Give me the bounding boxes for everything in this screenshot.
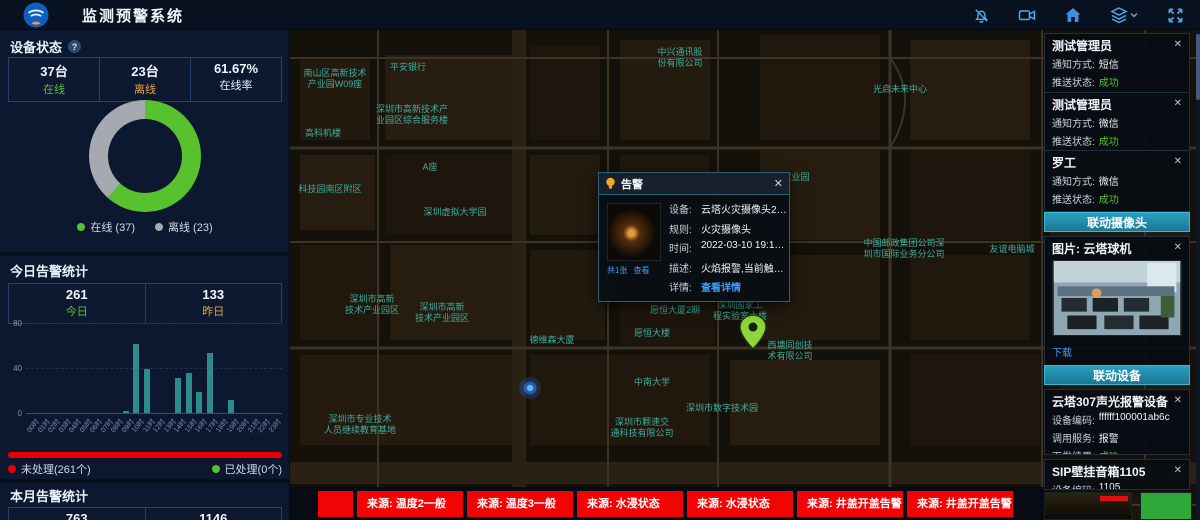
map-place-label: A座 [422,161,437,172]
card-row: 下发结果:成功 [1052,448,1182,455]
alarm-popup-header: 告警 ✕ [599,173,789,195]
top-header: 监测预警系统 [0,0,1200,30]
linked-camera-header: 联动摄像头 [1044,212,1190,232]
device-field-label: 设备编码: [1052,482,1095,490]
notification-title: 测试管理员 [1052,39,1170,53]
status-label: 推送状态: [1052,74,1095,89]
status-value: 成功 [1099,191,1119,206]
camera-snapshot-image[interactable] [1052,260,1182,336]
divider [0,252,290,256]
notification-card: 测试管理员✕通知方式:微信推送状态:成功 [1044,92,1190,154]
close-icon[interactable]: ✕ [1174,39,1182,50]
device-field-label: 调用服务: [1052,430,1095,445]
device-field-value: ffffff100001ab6c [1099,412,1170,427]
donut-legend: 在线 (37)离线 (23) [0,219,290,235]
map-place-label: 友谊电脑城 [989,243,1034,254]
y-tick-label: 0 [8,409,22,418]
dashboard: 南山区高新技术产业园W09座平安银行深圳市高新技术产业园区综合服务楼高科机楼A座… [0,0,1200,520]
today-alarm-stats: 261今日133昨日 [8,283,282,324]
card-row: 推送状态:成功 [1052,133,1182,148]
y-tick-label: 40 [8,364,22,373]
map-device-dot[interactable] [519,377,541,399]
device-status-title: 设备状态 ? [10,37,81,56]
stat-cell: 133昨日 [145,284,282,323]
card-row: 设备编码:ffffff100001ab6c [1052,412,1182,427]
bar [196,392,202,413]
header-actions [970,4,1186,26]
video-camera-icon[interactable] [1016,4,1038,26]
close-icon[interactable]: ✕ [1174,395,1182,406]
unhandled-label: 未处理(261个) [21,461,91,477]
gridline [26,323,282,324]
divider [0,479,290,483]
stat-value: 61.67% [191,61,281,76]
popup-field-row: 时间:2022-03-10 19:13:07 [669,240,787,255]
close-icon[interactable]: ✕ [1174,156,1182,167]
card-title-row: SIP壁挂音箱1105✕ [1052,465,1182,479]
notification-title: 罗工 [1052,156,1170,170]
alarm-popup: 告警 ✕ 共1张查看 设备:云塔火灾摄像头202规则:火灾摄像头时间:2022-… [598,172,790,302]
bar [175,378,181,413]
handled-dot [212,465,220,473]
stat-value: 261 [9,287,145,302]
device-status-donut-chart [89,100,201,212]
legend-dot [155,223,163,231]
card-row: 通知方式:短信 [1052,56,1182,71]
image-link[interactable]: 共1张 [607,265,627,276]
popup-field-label: 描述: [669,260,701,275]
bottom-video-thumbnails [1044,492,1192,520]
popup-field-row: 详情:查看详情 [669,279,787,294]
chevron-down-icon [1129,10,1139,20]
popup-field-row: 描述:火焰报警,当前触发值为... [669,260,787,275]
download-link[interactable]: 下载 [1052,344,1072,359]
alarm-ticker-item[interactable]: 来源: 温度2一般 [357,491,463,517]
gridline [26,368,282,369]
help-icon[interactable]: ? [68,40,81,53]
method-value: 微信 [1099,115,1119,130]
device-field-value: 报警 [1099,430,1119,445]
gridline [26,413,282,414]
thumbnail-alert-chip [1100,496,1128,501]
map-place-label: 深圳虚拟大学园 [423,206,486,217]
device-title: 云塔307声光报警设备 [1052,395,1170,409]
video-thumbnail-green[interactable] [1140,492,1192,520]
month-stat-value: 1146 [145,508,282,520]
status-label: 推送状态: [1052,191,1095,206]
method-label: 通知方式: [1052,115,1095,130]
donut-hole [108,119,182,193]
map-place-label: 中南大学 [634,376,670,387]
device-title: SIP壁挂音箱1105 [1052,465,1170,479]
status-value: 成功 [1099,74,1119,89]
alarm-image-links: 共1张查看 [607,265,663,276]
y-tick-label: 80 [8,319,22,328]
popup-field-value: 云塔火灾摄像头202 [701,201,787,216]
camera-card: 图片: 云塔球机 ✕ 下载 [1044,236,1190,367]
map-place-label: 光启未来中心 [873,83,927,94]
fullscreen-icon[interactable] [1164,4,1186,26]
notification-card: 罗工✕通知方式:微信推送状态:成功 [1044,150,1190,212]
popup-field-value: 火灾摄像头 [701,221,751,236]
stat-cell: 23台离线 [99,58,190,101]
map-place-label: 平安银行 [390,61,426,72]
card-row: 设备编码:1105 [1052,482,1182,490]
image-link[interactable]: 查看 [633,265,649,276]
map-place-label: 愿恒大厦2期 [650,304,700,315]
card-row: 通知方式:微信 [1052,115,1182,130]
stat-label: 离线 [100,81,190,97]
layers-icon[interactable] [1108,4,1140,26]
map-place-label: 深圳市数字技术园 [686,402,758,413]
method-label: 通知方式: [1052,173,1095,188]
video-thumbnail-camera[interactable] [1044,492,1132,520]
stat-label: 昨日 [146,303,282,319]
card-title-row: 测试管理员✕ [1052,98,1182,112]
bar [123,411,129,413]
method-value: 微信 [1099,173,1119,188]
status-label: 推送状态: [1052,133,1095,148]
close-icon[interactable]: ✕ [774,177,783,190]
notification-card: 测试管理员✕通知方式:短信推送状态:成功 [1044,33,1190,95]
alarm-ticker-item[interactable]: 来源: 水浸状态 [687,491,793,517]
bar [133,344,139,413]
camera-card-title: 图片: 云塔球机 [1052,242,1170,256]
stat-cell: 61.67%在线率 [190,58,281,101]
alarm-ticker-item[interactable]: 来源: 温度3一般 [467,491,573,517]
device-field-label: 设备编码: [1052,412,1095,427]
stat-value: 37台 [9,61,99,80]
app-logo-icon [22,1,50,34]
card-title-row: 云塔307声光报警设备✕ [1052,395,1182,409]
stat-cell: 37台在线 [9,58,99,101]
alarm-ticker-item[interactable]: 来源: 井盖开盖告警 [907,491,1013,517]
bar [228,400,234,414]
card-row: 调用服务:报警 [1052,430,1182,445]
alarm-mute-icon[interactable] [970,4,992,26]
right-scrollbar[interactable] [1196,30,1200,520]
home-icon[interactable] [1062,4,1084,26]
method-value: 短信 [1099,56,1119,71]
device-field-value: 成功 [1099,448,1119,455]
scrollbar-thumb[interactable] [1196,34,1200,100]
legend-dot [77,223,85,231]
method-label: 通知方式: [1052,56,1095,71]
map-place-label: 高科机楼 [305,127,341,138]
unhandled-progress-bar [8,452,282,458]
alarm-popup-title: 告警 [621,176,769,192]
legend-item: 在线 (37) [77,219,135,235]
device-status-stats: 37台在线23台离线61.67%在线率 [8,57,282,102]
hourly-alarm-bar-chart: 8040000时01时02时03时04时05时06时07时08时09时10时11… [8,320,282,445]
today-alarms-title: 今日告警统计 [10,261,88,280]
card-row: 推送状态:成功 [1052,191,1182,206]
popup-field-value: 火焰报警,当前触发值为... [701,260,787,275]
popup-field-label: 规则: [669,221,701,236]
bulb-icon [605,177,616,190]
stat-cell: 261今日 [9,284,145,323]
card-row: 推送状态:成功 [1052,74,1182,89]
month-alarm-stats: 7631146 [8,507,282,520]
map-place-label: 愿恒大楼 [634,327,670,338]
popup-field-value: 2022-03-10 19:13:07 [701,240,787,255]
view-details-link[interactable]: 查看详情 [701,279,741,294]
device-card: 云塔307声光报警设备✕设备编码:ffffff100001ab6c调用服务:报警… [1044,389,1190,455]
handled-label: 已处理(0个) [225,461,282,477]
card-title-row: 测试管理员✕ [1052,39,1182,53]
popup-field-label: 时间: [669,240,701,255]
legend-label: 离线 (23) [168,219,213,235]
bar [186,373,192,414]
bar [144,369,150,413]
card-title-row: 罗工✕ [1052,156,1182,170]
stat-label: 今日 [9,303,145,319]
unhandled-dot [8,465,16,473]
alarm-popup-fields: 设备:云塔火灾摄像头202规则:火灾摄像头时间:2022-03-10 19:13… [669,201,787,299]
page-title: 监测预警系统 [82,5,184,26]
stat-label: 在线率 [191,77,281,93]
device-card: SIP壁挂音箱1105✕设备编码:1105 [1044,459,1190,490]
alarm-ticker-item[interactable] [318,491,353,517]
legend-label: 在线 (37) [90,219,135,235]
close-icon[interactable]: ✕ [1174,98,1182,109]
month-stat-value: 763 [9,508,145,520]
right-sidebar: 测试管理员✕通知方式:短信推送状态:成功测试管理员✕通知方式:微信推送状态:成功… [1044,30,1194,520]
close-icon[interactable]: ✕ [1174,465,1182,476]
popup-field-label: 设备: [669,201,701,216]
alarm-ticker-item[interactable]: 来源: 水浸状态 [577,491,683,517]
popup-field-label: 详情: [669,279,701,294]
bar [207,353,213,413]
alarm-ticker-item[interactable]: 来源: 井盖开盖告警 [797,491,903,517]
device-field-value: 1105 [1099,482,1121,490]
stat-value: 133 [146,287,282,302]
map-place-label: 德维森大厦 [529,334,574,345]
card-row: 通知方式:微信 [1052,173,1182,188]
status-value: 成功 [1099,133,1119,148]
close-icon[interactable]: ✕ [1174,242,1182,253]
alarm-snapshot-image[interactable] [607,203,661,261]
month-alarms-title: 本月告警统计 [10,486,88,505]
linked-device-header: 联动设备 [1044,365,1190,385]
notification-title: 测试管理员 [1052,98,1170,112]
device-field-label: 下发结果: [1052,448,1095,455]
left-sidebar: 设备状态 ? 37台在线23台离线61.67%在线率 在线 (37)离线 (23… [0,30,290,520]
popup-field-row: 规则:火灾摄像头 [669,221,787,236]
stat-label: 在线 [9,81,99,97]
alarm-ticker: 来源: 温度2一般来源: 温度3一般来源: 水浸状态来源: 水浸状态来源: 井盖… [290,487,1044,520]
legend-item: 离线 (23) [155,219,213,235]
stat-value: 23台 [100,61,190,80]
process-legend: 未处理(261个) 已处理(0个) [8,461,282,477]
popup-field-row: 设备:云塔火灾摄像头202 [669,201,787,216]
map-place-label: 科技园南区附区 [298,183,361,194]
